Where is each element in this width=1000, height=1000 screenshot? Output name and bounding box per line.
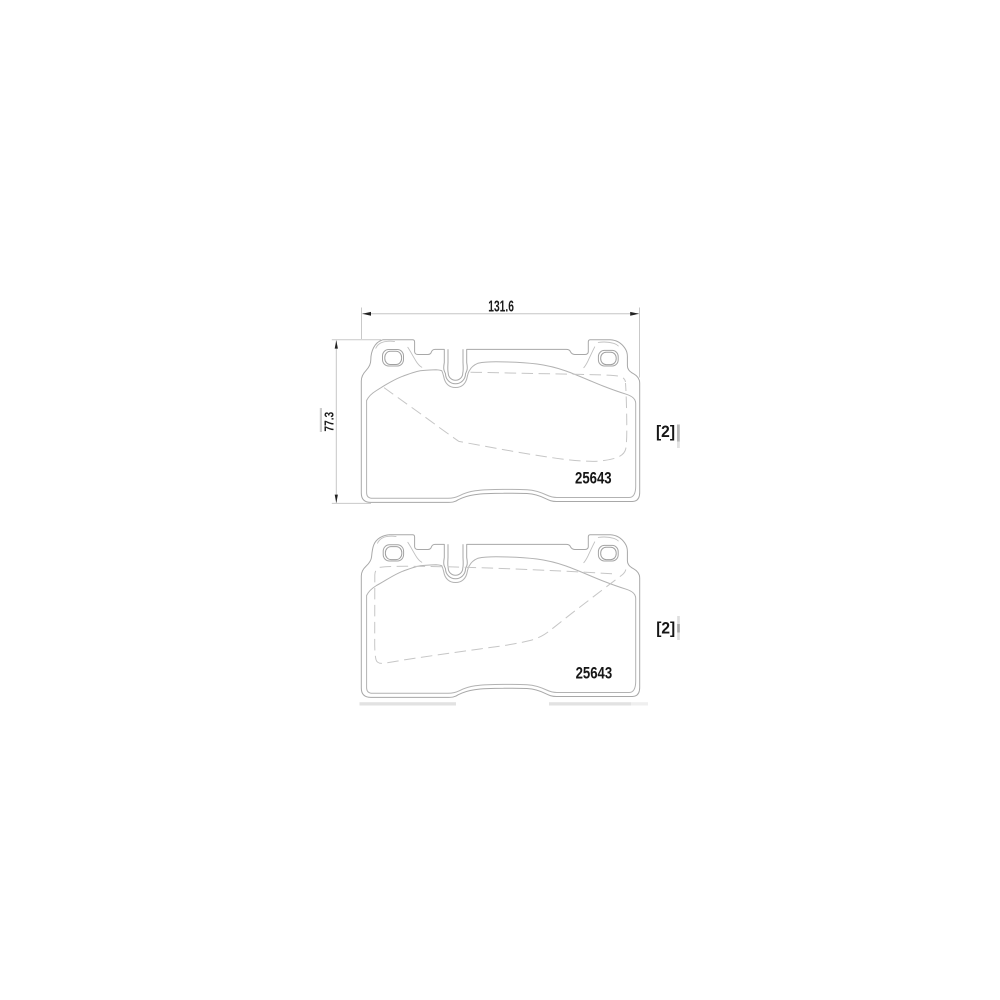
svg-text:[2]: [2] <box>656 423 675 441</box>
svg-text:77.3: 77.3 <box>321 412 336 432</box>
svg-text:131.6: 131.6 <box>488 299 514 316</box>
svg-text:25643: 25643 <box>576 665 613 683</box>
svg-text:[2]: [2] <box>656 620 675 638</box>
svg-text:25643: 25643 <box>575 470 612 488</box>
